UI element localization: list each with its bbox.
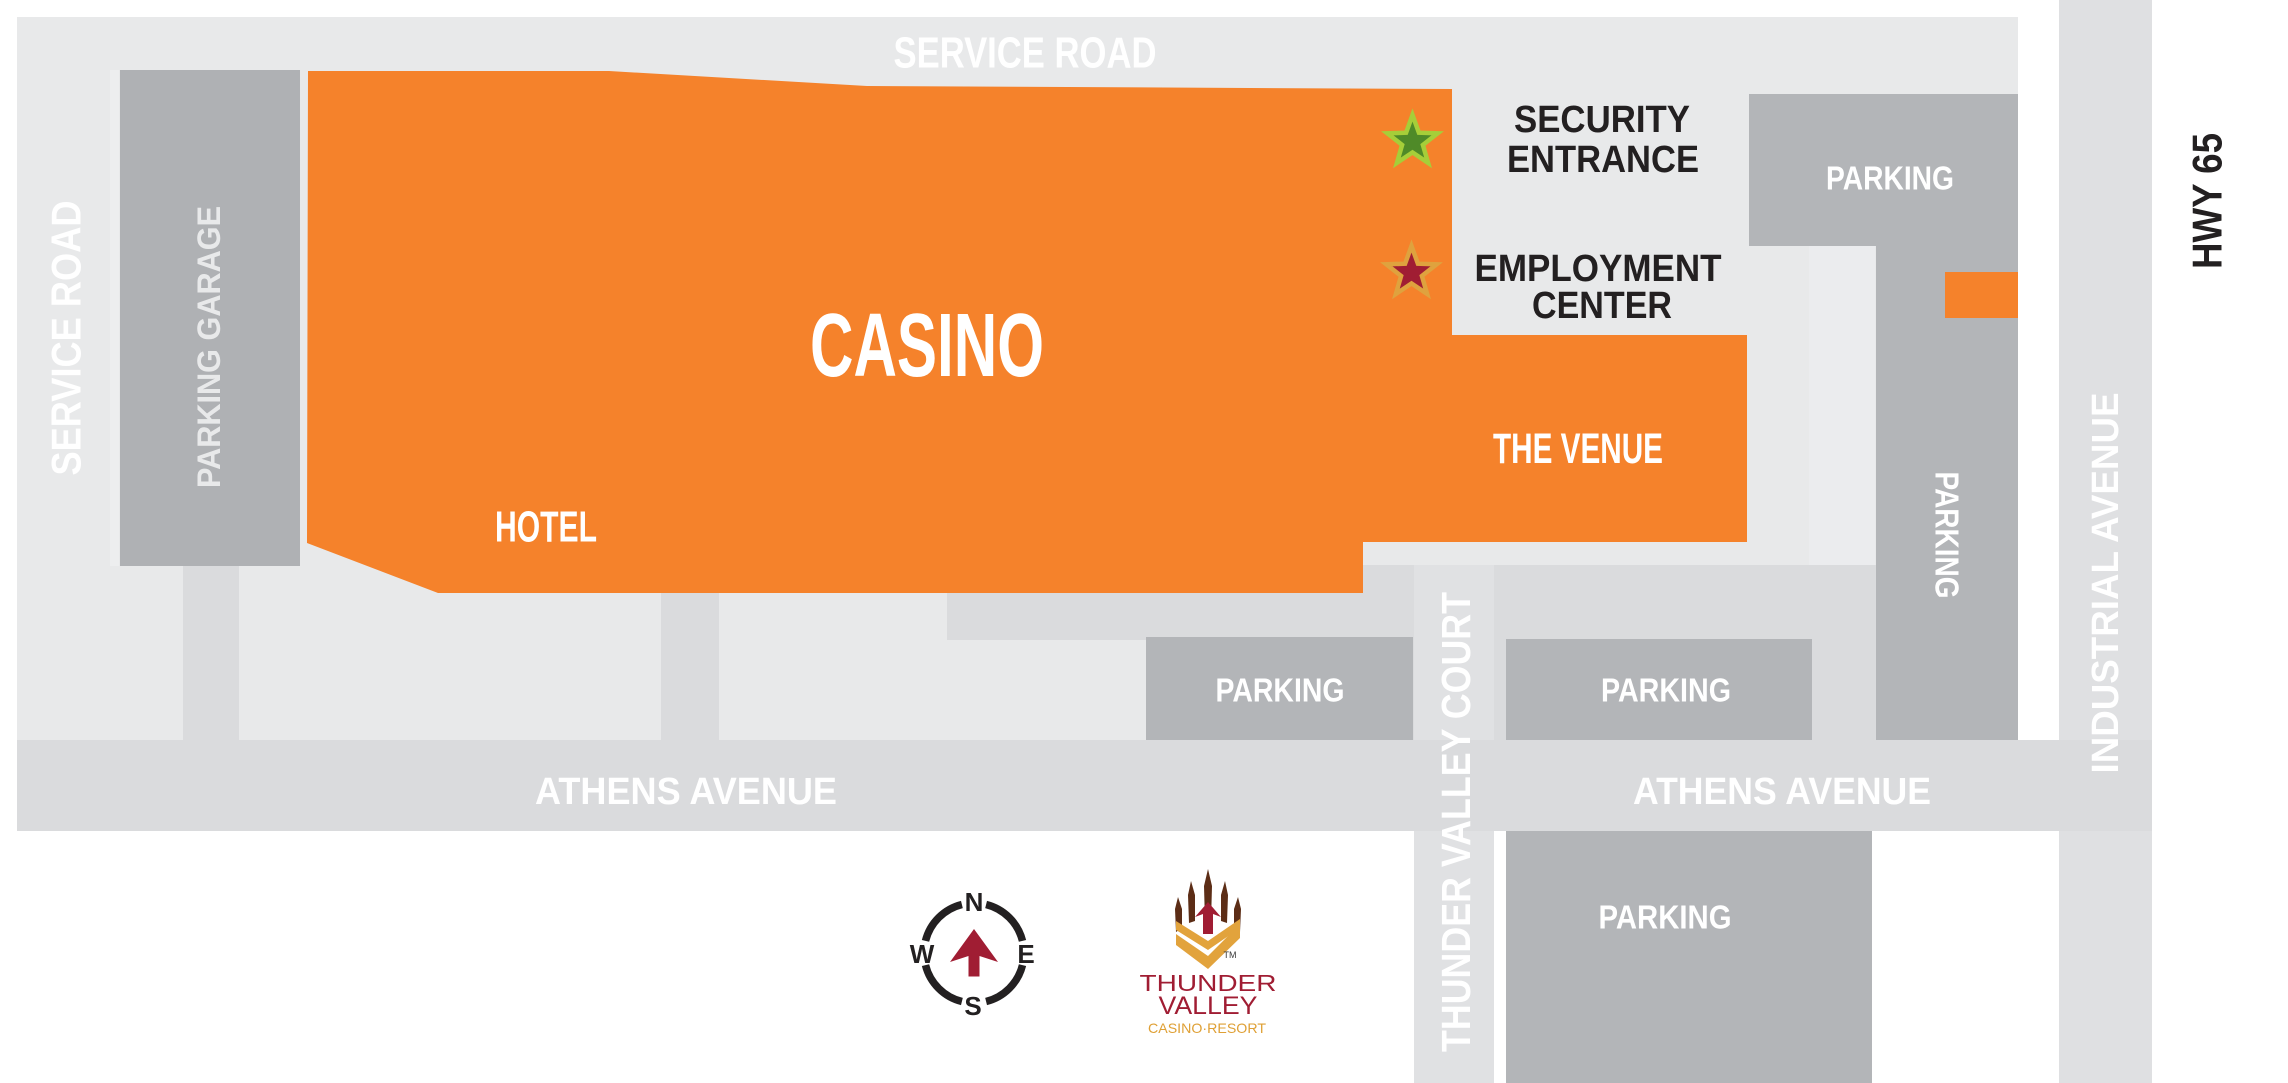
svg-text:PARKING: PARKING (1216, 672, 1345, 709)
svg-text:PARKING: PARKING (1601, 672, 1731, 709)
svg-text:THE VENUE: THE VENUE (1493, 425, 1663, 473)
svg-text:SERVICE ROAD: SERVICE ROAD (43, 201, 90, 476)
svg-text:PARKING: PARKING (1826, 160, 1954, 197)
svg-text:TM: TM (1224, 950, 1237, 960)
svg-text:PARKING: PARKING (1929, 472, 1966, 599)
svg-text:ATHENS AVENUE: ATHENS AVENUE (535, 771, 837, 813)
svg-text:HOTEL: HOTEL (495, 503, 597, 552)
svg-text:PARKING GARAGE: PARKING GARAGE (191, 206, 227, 488)
svg-text:THUNDER VALLEY COURT: THUNDER VALLEY COURT (1433, 592, 1479, 1052)
svg-text:HWY 65: HWY 65 (2184, 133, 2231, 269)
svg-text:EMPLOYMENT: EMPLOYMENT (1475, 248, 1722, 290)
svg-text:CASINO: CASINO (810, 296, 1044, 396)
svg-text:SECURITY: SECURITY (1514, 99, 1690, 141)
svg-text:E: E (1017, 939, 1034, 969)
svg-text:CASINO·RESORT: CASINO·RESORT (1148, 1020, 1266, 1036)
svg-text:INDUSTRIAL AVENUE: INDUSTRIAL AVENUE (2085, 393, 2127, 774)
svg-text:ENTRANCE: ENTRANCE (1507, 139, 1699, 181)
svg-text:ATHENS AVENUE: ATHENS AVENUE (1633, 771, 1931, 813)
svg-text:W: W (910, 939, 935, 969)
svg-text:VALLEY: VALLEY (1159, 992, 1258, 1020)
svg-text:CENTER: CENTER (1532, 285, 1672, 327)
svg-text:S: S (964, 991, 981, 1021)
svg-text:PARKING: PARKING (1599, 899, 1732, 936)
svg-text:SERVICE ROAD: SERVICE ROAD (894, 29, 1157, 78)
svg-text:N: N (965, 887, 984, 917)
